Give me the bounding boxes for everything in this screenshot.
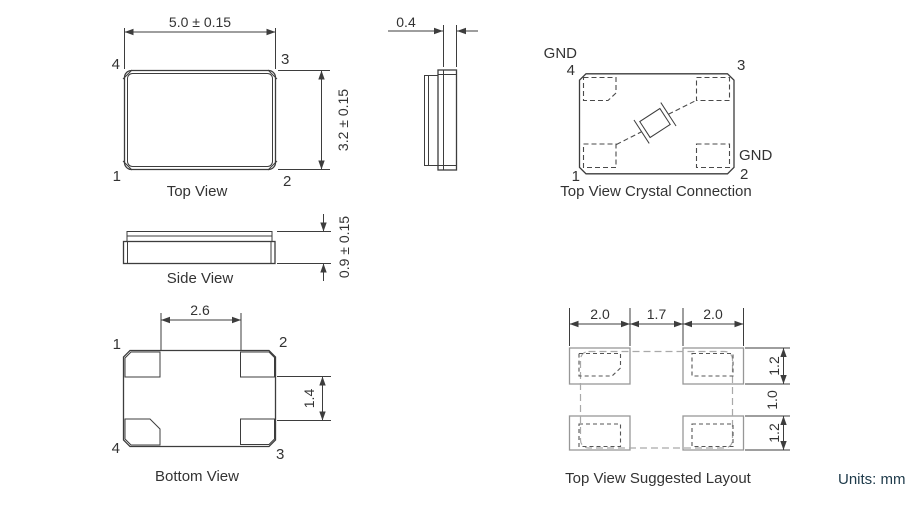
top-view-pin-1-label: 1 xyxy=(113,168,121,185)
layout-package-outline-dashed xyxy=(581,352,733,449)
bottom-view-gap-dimension: 1.4 xyxy=(277,377,331,421)
bottom-view: 2.6 1.4 1 2 4 3 Bottom View xyxy=(112,302,331,485)
bottom-view-gap-dim-label: 1.4 xyxy=(301,389,317,409)
connection-gnd-top-label: GND xyxy=(544,45,578,62)
bottom-view-pin-1-label: 1 xyxy=(113,336,121,353)
bottom-view-span-dim-label: 2.6 xyxy=(190,302,210,318)
end-view-thickness-dim-label: 0.4 xyxy=(396,14,416,30)
connection-package-outline xyxy=(580,74,735,174)
bottom-view-span-dimension: 2.6 xyxy=(161,302,241,350)
bottom-view-pin-4-label: 4 xyxy=(112,440,120,457)
layout-caption: Top View Suggested Layout xyxy=(565,470,752,487)
top-view-package-outer xyxy=(125,71,276,170)
side-view: 0.9 ± 0.15 Side View xyxy=(124,214,353,287)
connection-pad-3 xyxy=(697,78,730,101)
layout-crystal-pad-bottom-right xyxy=(692,424,733,447)
top-view-package-inner xyxy=(128,74,273,167)
layout-land-pad-top-left xyxy=(570,348,631,384)
side-view-height-dim-label: 0.9 ± 0.15 xyxy=(336,216,352,278)
units-note: Units: mm xyxy=(838,471,906,488)
bottom-view-pad-3 xyxy=(241,419,275,445)
layout-pad-width-left-dim-label: 2.0 xyxy=(590,306,610,322)
connection-pin-4-label: 4 xyxy=(567,62,575,79)
top-view-corner-notches xyxy=(123,70,277,170)
bottom-view-pad-4 xyxy=(125,419,160,445)
side-view-height-dimension: 0.9 ± 0.15 xyxy=(277,214,352,281)
connection-pin-3-label: 3 xyxy=(737,57,745,74)
connection-gnd-right-label: GND xyxy=(739,147,773,164)
layout-horizontal-dimensions: 2.0 1.7 2.0 xyxy=(570,306,744,346)
top-view-height-dim-label: 3.2 ± 0.15 xyxy=(335,89,351,151)
connection-caption: Top View Crystal Connection xyxy=(560,183,751,200)
layout-crystal-pad-bottom-left xyxy=(579,424,621,447)
connection-pad-2 xyxy=(697,144,730,168)
layout-row-gap-dim-label: 1.0 xyxy=(764,390,780,410)
top-view-pin-2-label: 2 xyxy=(283,173,291,190)
bottom-view-package-outline xyxy=(124,351,276,447)
drawing-canvas: 5.0 ± 0.15 3.2 ± 0.15 4 3 1 2 Top View 0… xyxy=(0,0,908,528)
connection-pin-2-label: 2 xyxy=(740,166,748,183)
connection-pad-1 xyxy=(584,144,617,168)
top-view-width-dim-label: 5.0 ± 0.15 xyxy=(169,14,231,30)
crystal-symbol xyxy=(610,86,702,159)
bottom-view-pin-2-label: 2 xyxy=(279,334,287,351)
crystal-connection-view: GND 4 3 1 2 GND Top View Crystal Connect… xyxy=(544,45,773,200)
top-view-caption: Top View xyxy=(167,183,228,200)
bottom-view-caption: Bottom View xyxy=(155,468,239,485)
end-view-thickness-dimension: 0.4 xyxy=(388,14,478,67)
layout-pad-width-right-dim-label: 2.0 xyxy=(703,306,723,322)
top-view: 5.0 ± 0.15 3.2 ± 0.15 4 3 1 2 Top View xyxy=(112,14,351,200)
crystal-package-drawing: 5.0 ± 0.15 3.2 ± 0.15 4 3 1 2 Top View 0… xyxy=(0,0,908,528)
top-view-pin-4-label: 4 xyxy=(112,56,120,73)
side-view-caption: Side View xyxy=(167,270,234,287)
layout-pad-height-bottom-dim-label: 1.2 xyxy=(766,423,782,443)
end-view: 0.4 xyxy=(388,14,478,170)
end-view-lid xyxy=(425,76,439,166)
layout-pad-gap-dim-label: 1.7 xyxy=(647,306,667,322)
top-view-height-dimension: 3.2 ± 0.15 xyxy=(278,71,351,170)
end-view-body xyxy=(438,70,457,170)
bottom-view-pad-2 xyxy=(241,352,275,377)
bottom-view-pad-1 xyxy=(125,352,160,377)
layout-pad-height-top-dim-label: 1.2 xyxy=(766,356,782,376)
suggested-layout-view: 2.0 1.7 2.0 1.2 1.0 1.2 Top View Suggest… xyxy=(565,306,790,487)
layout-crystal-pad-top-left xyxy=(579,354,621,377)
bottom-view-pin-3-label: 3 xyxy=(276,446,284,463)
layout-crystal-pad-top-right xyxy=(692,354,733,377)
side-view-body xyxy=(124,242,276,264)
layout-vertical-dimensions: 1.2 1.0 1.2 xyxy=(745,348,790,450)
top-view-pin-3-label: 3 xyxy=(281,51,289,68)
top-view-width-dimension: 5.0 ± 0.15 xyxy=(125,14,276,69)
connection-pad-4 xyxy=(584,78,617,101)
